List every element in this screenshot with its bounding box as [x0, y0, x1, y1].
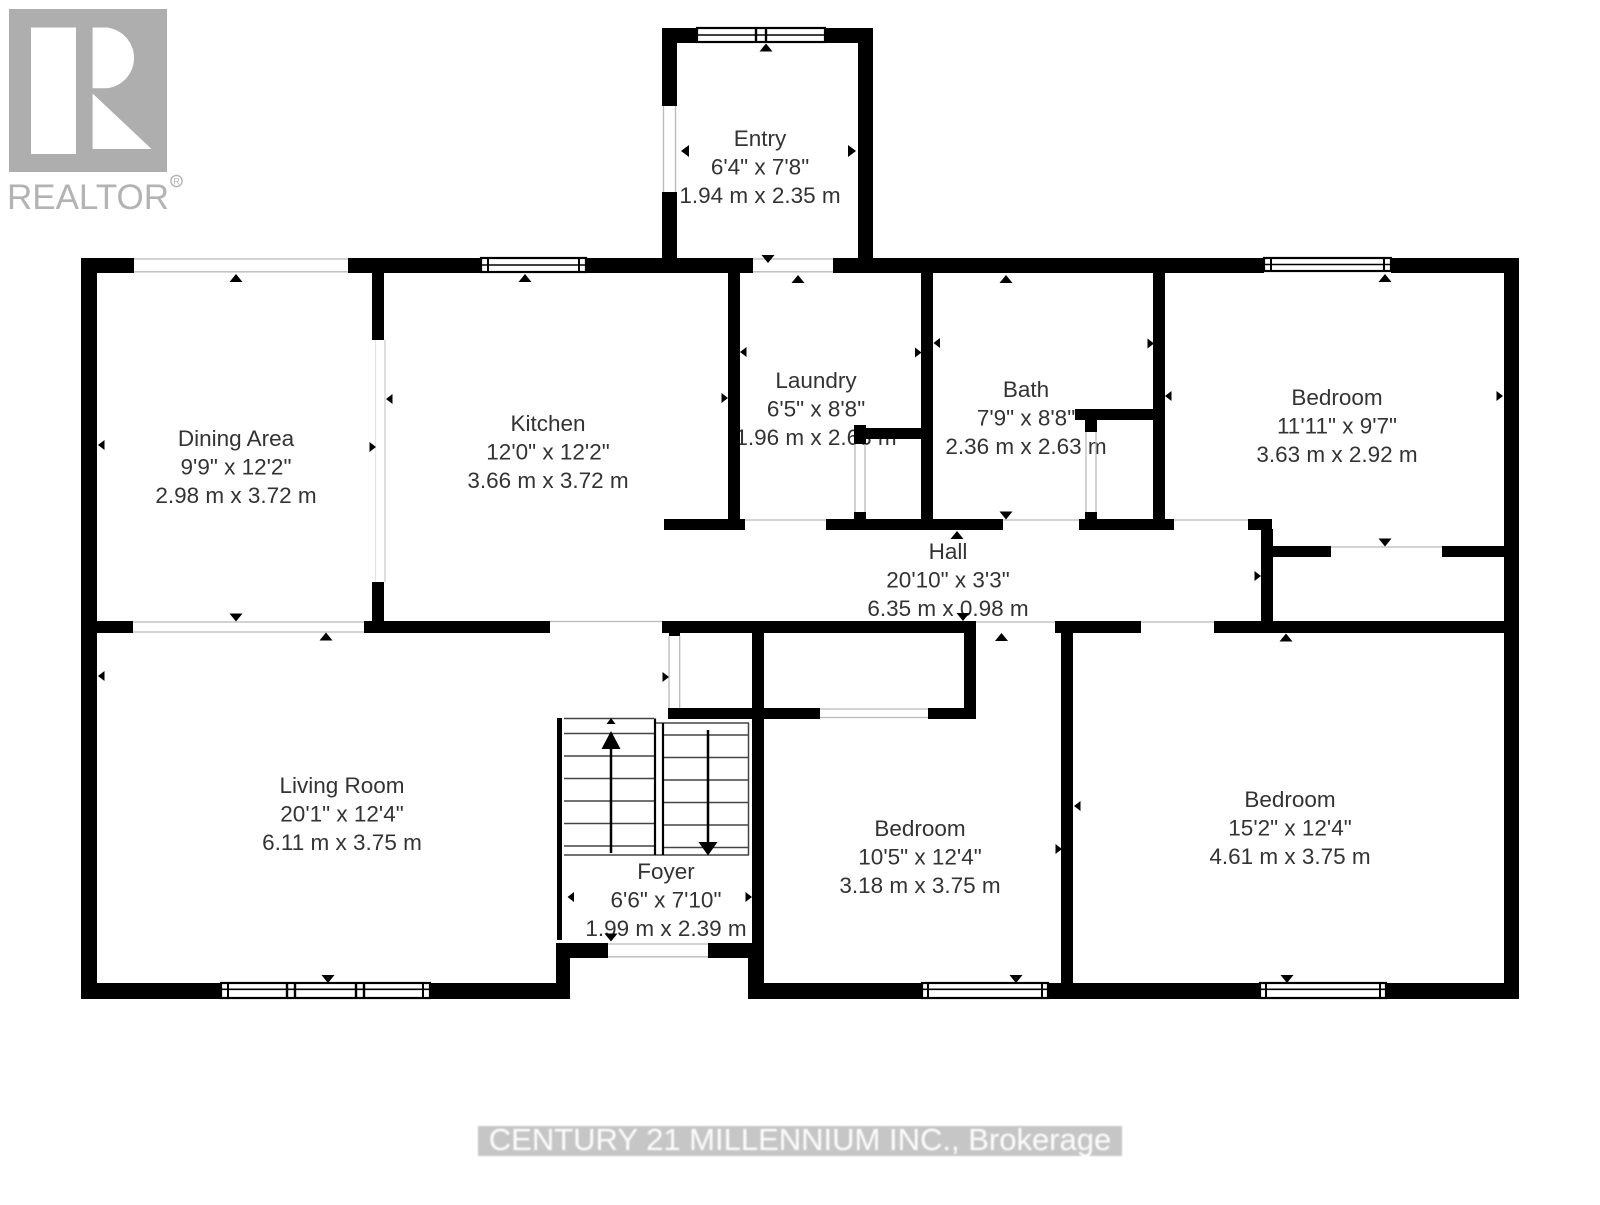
svg-text:Living Room20'1" x 12'4"6.11 m: Living Room20'1" x 12'4"6.11 m x 3.75 m [262, 773, 422, 855]
svg-text:R: R [173, 177, 180, 187]
svg-text:REALTOR: REALTOR [7, 178, 169, 217]
svg-text:CENTURY 21 MILLENNIUM INC., Br: CENTURY 21 MILLENNIUM INC., Brokerage [489, 1122, 1111, 1157]
